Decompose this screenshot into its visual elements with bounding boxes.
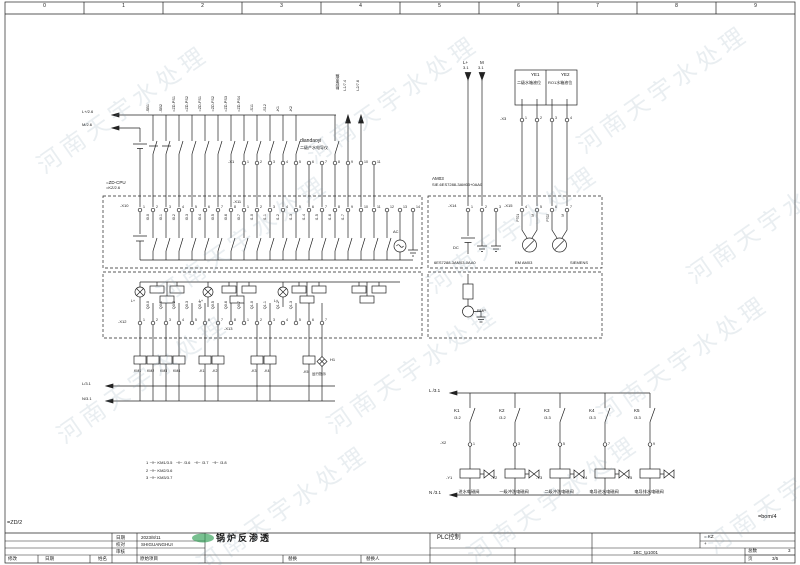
terminal-number: 2 [156, 319, 169, 323]
terminal-number: 6 [312, 319, 325, 323]
terminal-number: 2 [260, 206, 273, 210]
do-channel-label: Q1.0 [250, 301, 263, 309]
column-index: 3 [242, 4, 321, 9]
tank-label: 脱盐水箱 [336, 74, 340, 89]
k-relay-tags: -K3-K4 [251, 370, 277, 374]
terminal-number: 3 [518, 442, 520, 446]
x10-label: -X10 [120, 204, 128, 209]
x2-label: -X2 [440, 441, 446, 446]
terminal-number: 11 [377, 206, 390, 210]
terminal-number: 5 [299, 206, 312, 210]
terminal-number: 6 [208, 206, 221, 210]
field-device-label: =ZD-FS2 [211, 96, 224, 112]
contact-ref: /3.2 [499, 415, 506, 420]
ref-left: =ZD/2 [7, 520, 22, 526]
terminal-number: 3 [169, 319, 182, 323]
schematic-canvas [0, 0, 800, 565]
do-channel-label: Q1.3 [289, 301, 302, 309]
terminal-number: 1 [473, 442, 475, 446]
bus-m-label: M/2.6 [82, 123, 92, 128]
terminal-number: 7 [325, 319, 338, 323]
relay-tag: KM1 [134, 370, 147, 374]
relay-tag: KM2 [147, 370, 160, 374]
field-device-label: -S12 [263, 104, 276, 112]
terminal-number: 9 [351, 206, 364, 210]
di-channel-label: I1.5 [315, 214, 328, 220]
terminal-number: 6 [312, 161, 325, 165]
di-channel-label: I0.7 [237, 214, 250, 220]
column-index: 0 [5, 4, 84, 9]
ladder-rail-top-label: L /3.1 [429, 388, 440, 393]
terminal-number: 4 [182, 319, 195, 323]
terminal-number: 1 [247, 161, 260, 165]
drawing-title: 锅炉反渗透 [216, 533, 271, 543]
analog-signal-label: M [532, 214, 547, 217]
terminal-number: 7 [221, 206, 234, 210]
di-channel-labels: I0.0I0.1I0.2I0.3I0.4I0.5I0.6I0.7I1.0I1.1… [146, 214, 354, 220]
h1-tag: H1 [330, 358, 335, 363]
contact-ref: /3.2 [454, 415, 461, 420]
m-arrow-ref: 3.1 [478, 66, 484, 71]
relay-tag: -K3 [251, 370, 264, 374]
check-value: SHIGUANGHUI [141, 542, 173, 547]
dc-label: DC [453, 246, 459, 251]
ladder-branch: K5 /3.3 9 -Y5 电导排水电磁阀 [628, 405, 673, 500]
aux-box-label: RMP [477, 309, 486, 314]
di-channel-label: I0.6 [224, 214, 237, 220]
k-relay-tags: -K1-K2 [199, 370, 225, 374]
contact-ref: /3.3 [544, 415, 551, 420]
do-channel-label: Q0.2 [172, 301, 185, 309]
terminal-number: 1 [471, 206, 485, 210]
terminal-number: 7 [608, 442, 610, 446]
l1-ref-label: L1/7.4 [344, 80, 348, 91]
contact-tag: K2 [499, 408, 505, 413]
di-channel-label: I1.1 [263, 214, 276, 220]
field-device-label: -S11 [250, 104, 263, 112]
relay-tag: KM4 [173, 370, 186, 374]
terminal-number: 7 [221, 319, 234, 323]
relay-tag: -K1 [199, 370, 212, 374]
di-channel-label: I0.5 [211, 214, 224, 220]
terminal-number: 4 [286, 161, 299, 165]
replaceby-label: 替换人 [366, 556, 380, 561]
field-device-labels: -SB1-SB2=ZD-PS1=ZD-PS2=ZD-FS1=ZD-FS2=ZD-… [146, 66, 302, 112]
do-channel-label: Q0.5 [211, 301, 224, 309]
di-channel-label: I1.6 [328, 214, 341, 220]
di-channel-label: I1.7 [341, 214, 354, 220]
terminal-number: 14 [416, 206, 429, 210]
ye2-tag: YE2 [561, 72, 570, 77]
do-channel-label: Q0.7 [237, 301, 250, 309]
check-label: 校对 [116, 542, 125, 547]
em-name: EM AM03 [515, 261, 532, 266]
contact-crossref-line: 2 ⊣⊢ KM2/3.6 [146, 467, 227, 475]
solenoid-tag: -Y3 [536, 475, 542, 480]
do-channel-label: Q1.1 [263, 301, 276, 309]
lamp-supply-label: L+ [131, 299, 135, 303]
conductivity-caption: 二级产水电导仪 [300, 146, 328, 151]
contact-tag: K5 [634, 408, 640, 413]
analog-signal-label: PT01 [517, 214, 532, 222]
di-channel-label: I1.2 [276, 214, 289, 220]
x1-label: -X1 [228, 160, 234, 165]
total-label: 总数 [748, 548, 757, 553]
terminal-number: 2 [260, 161, 273, 165]
x13-label: -X13 [224, 327, 232, 332]
x15-label: -X15 [504, 204, 512, 209]
ref-right: =bom/4 [758, 514, 777, 520]
plus-ref: + [704, 541, 707, 546]
supply-buses-top [112, 113, 336, 207]
kz-ref: = KZ [704, 534, 714, 539]
ground-symbol [408, 212, 418, 256]
l2-ref-label: L2/7.6 [357, 80, 361, 91]
solenoid-caption: 电导排水电磁阀 [614, 489, 684, 495]
terminal-number: 4 [182, 206, 195, 210]
do-channel-label: Q0.0 [146, 301, 159, 309]
page-value: 3/5 [772, 556, 778, 561]
ai-module-code: SIE.6ES7288-3AM03+0AA0 [432, 183, 482, 188]
terminal-number: 7 [325, 206, 338, 210]
terminal-number: 8 [338, 206, 351, 210]
relay-tag: -K4 [264, 370, 277, 374]
do-channel-label: Q1.2 [276, 301, 289, 309]
di-channel-label: I0.0 [146, 214, 159, 220]
h1-caption: 运行指示 [312, 372, 326, 376]
terminal-number: 4 [286, 319, 299, 323]
conductivity-name: diandaoyi [300, 139, 321, 145]
em-code: 6ES7288-3AM03-0AA0 [434, 261, 476, 266]
drawing-subtitle: PLC控制 [437, 535, 461, 542]
terminal-number: 8 [234, 319, 247, 323]
relay-tag: -K5 [303, 370, 308, 374]
di-channel-label: I0.1 [159, 214, 172, 220]
contact-ref: /3.3 [634, 415, 641, 420]
terminal-number: 4 [525, 206, 540, 210]
date-value: 2023/8/11 [141, 535, 161, 540]
bus-lplus-label: L+/2.6 [82, 110, 93, 115]
contact-crossref-line: 3 ⊣⊢ KM3/3.7 [146, 474, 227, 482]
drawing-frame [5, 2, 795, 563]
terminal-number: 1 [525, 117, 540, 121]
ai-module-name: AM03 [432, 176, 444, 181]
page-label: 页 [748, 556, 753, 561]
terminal-number: 3 [273, 161, 286, 165]
x3-terminal-numbers: 1234 [525, 117, 585, 121]
column-index: 1 [84, 4, 163, 9]
analog-signal-label: M [562, 214, 577, 217]
field-device-label: -SB1 [146, 104, 159, 112]
contact-ref: /3.3 [589, 415, 596, 420]
em-brand: SIEMENS [570, 261, 588, 266]
relay-tag: -K2 [212, 370, 225, 374]
indicator-lamp-h1 [317, 325, 327, 401]
terminal-number: 1 [143, 206, 156, 210]
field-device-label: =ZD-PS1 [172, 96, 185, 112]
terminal-number: 2 [485, 206, 499, 210]
terminal-number: 10 [364, 206, 377, 210]
field-device-label: =ZD-PS2 [185, 96, 198, 112]
x1-terminal-numbers: 1234567891011 [247, 161, 390, 165]
terminal-number: 5 [299, 319, 312, 323]
contact-tag: K3 [544, 408, 550, 413]
green-stamp [192, 534, 214, 543]
field-device-label: =ZD-PS3 [224, 96, 237, 112]
do-channel-labels: Q0.0Q0.1Q0.2Q0.3Q0.4Q0.5Q0.6Q0.7Q1.0Q1.1… [146, 301, 302, 309]
column-index: 9 [716, 4, 795, 9]
terminal-number: 1 [143, 319, 156, 323]
x12-label: -X12 [118, 320, 126, 325]
contact-tag: K4 [589, 408, 595, 413]
replace-label: 替换 [288, 556, 297, 561]
ladder-branch: K3 /3.3 5 -Y3 二级冲洗电磁阀 [538, 405, 583, 500]
column-index: 2 [163, 4, 242, 9]
di-channel-label: I0.3 [185, 214, 198, 220]
terminal-number: 5 [563, 442, 565, 446]
di-channel-label: I1.0 [250, 214, 263, 220]
x10-terminal-numbers: 12345678 [143, 206, 247, 210]
field-device-label: =ZD-FS1 [198, 96, 211, 112]
terminal-number: 7 [325, 161, 338, 165]
terminal-number: 3 [555, 117, 570, 121]
terminal-number: 12 [390, 206, 403, 210]
orig-project-label: 原始项目 [140, 556, 158, 561]
di-channel-label: I1.4 [302, 214, 315, 220]
field-device-label: -SB2 [159, 104, 172, 112]
contact-crossref-list: 1 ⊣⊢ KM1/3.5 ⊣⊢ /3.6 ⊣⊢ /3.7 ⊣⊢ /3.82 ⊣⊢… [146, 459, 227, 482]
terminal-number: 2 [156, 206, 169, 210]
terminal-number: 5 [540, 206, 555, 210]
column-index: 5 [400, 4, 479, 9]
terminal-number: 8 [234, 206, 247, 210]
field-device-label: -K1 [276, 106, 289, 112]
ac-label: AC [393, 230, 399, 235]
ye1-caption: 二级水箱液位 [517, 81, 541, 86]
terminal-number: 13 [403, 206, 416, 210]
solenoid-tag: -Y4 [581, 475, 587, 480]
terminal-number: 5 [299, 161, 312, 165]
x11-label: -X11 [233, 200, 241, 205]
column-index: 7 [558, 4, 637, 9]
terminal-number: 8 [338, 161, 351, 165]
bus-n-label: N/3.1 [82, 397, 92, 402]
terminal-number: 7 [570, 206, 585, 210]
terminal-number: 6 [208, 319, 221, 323]
do-channel-label: Q0.4 [198, 301, 211, 309]
terminal-number: 5 [195, 319, 208, 323]
field-device-label: =ZD-PS4 [237, 96, 250, 112]
do-channel-label: Q0.3 [185, 301, 198, 309]
analog-signal-labels: PT01MPT02M [517, 214, 577, 222]
audit-label: 审核 [116, 549, 125, 554]
analog-signal-label: PT02 [547, 214, 562, 222]
schematic-page: 0123456789 =ZD/2 =bom/4 =ZD-CPU =KZ/2.6 … [0, 0, 800, 565]
di-channel-label: I0.2 [172, 214, 185, 220]
terminal-number: 11 [377, 161, 390, 165]
terminal-number: 4 [286, 206, 299, 210]
do-channel-label: Q0.6 [224, 301, 237, 309]
bus-l-label: L/3.1 [82, 382, 91, 387]
relay-coil-row [106, 325, 335, 403]
column-index: 4 [321, 4, 400, 9]
terminal-number: 5 [195, 206, 208, 210]
do-channel-label: Q0.1 [159, 301, 172, 309]
di-channel-label: I1.3 [289, 214, 302, 220]
column-index: 6 [479, 4, 558, 9]
x12-terminal-numbers: 12345678 [143, 319, 247, 323]
date-label: 日期 [116, 535, 125, 540]
terminal-number: 9 [653, 442, 655, 446]
terminal-number: 2 [260, 319, 273, 323]
terminal-number: 3 [273, 319, 286, 323]
terminal-number: 6 [555, 206, 570, 210]
ac-source-symbol [394, 212, 406, 260]
terminal-number: 6 [312, 206, 325, 210]
terminal-number: 10 [364, 161, 377, 165]
relay-tag: KM3 [160, 370, 173, 374]
terminal-number: 2 [540, 117, 555, 121]
ye1-tag: YE1 [531, 72, 540, 77]
modify-label: 修改 [8, 556, 17, 561]
ladder-branch: K4 /3.3 7 -Y4 电导进水电磁阀 [583, 405, 628, 500]
field-device-label: -K2 [289, 106, 302, 112]
x15-terminal-numbers: 4567 [525, 206, 585, 210]
terminal-number: 9 [351, 161, 364, 165]
km-relay-tags: KM1KM2KM3KM4 [134, 370, 186, 374]
ye2-caption: RO1水箱液位 [548, 81, 572, 86]
aux-module-box [428, 272, 602, 338]
document-number: 1BC_tp1001 [633, 550, 658, 555]
solenoid-tag: -Y1 [446, 475, 452, 480]
di-channel-label: I0.4 [198, 214, 211, 220]
x13-terminal-numbers: 1234567 [247, 319, 338, 323]
terminal-number: 4 [570, 117, 585, 121]
solenoid-tag: -Y5 [626, 475, 632, 480]
lplus-arrow-ref: 3.1 [463, 66, 469, 71]
cpu-ref: =KZ/2.6 [106, 186, 120, 191]
contact-tag: K1 [454, 408, 460, 413]
terminal-number: 3 [273, 206, 286, 210]
x11-terminal-numbers: 1234567891011121314 [247, 206, 429, 210]
total-value: 3 [788, 548, 791, 553]
contact-crossref-line: 1 ⊣⊢ KM1/3.5 ⊣⊢ /3.6 ⊣⊢ /3.7 ⊣⊢ /3.8 [146, 459, 227, 467]
terminal-number: 1 [247, 319, 260, 323]
ladder-branch: K1 /3.2 1 -Y1 进水电磁阀 [448, 405, 493, 500]
terminal-number: 1 [247, 206, 260, 210]
ladder-branches: K1 /3.2 1 -Y1 进水电磁阀 K2 /3.2 3 -Y2 一级冲洗电磁… [448, 405, 673, 500]
mdate-label: 日期 [45, 556, 54, 561]
name-label: 姓名 [98, 556, 107, 561]
ladder-branch: K2 /3.2 3 -Y2 一级冲洗电磁阀 [493, 405, 538, 500]
x3-label: -X3 [500, 117, 506, 122]
x14-label: -X14 [448, 204, 456, 209]
column-index-row: 0123456789 [5, 4, 795, 9]
terminal-number: 3 [169, 206, 182, 210]
output-driver-blocks [150, 282, 386, 303]
solenoid-tag: -Y2 [491, 475, 497, 480]
column-index: 8 [637, 4, 716, 9]
